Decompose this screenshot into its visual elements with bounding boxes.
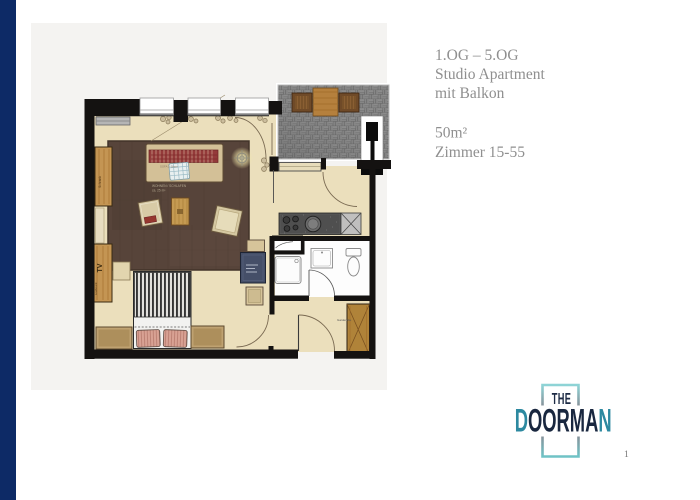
svg-text:Garderobe: Garderobe [337, 318, 352, 322]
svg-text:Studio Apartment: Studio Apartment [435, 66, 545, 83]
svg-text:TV: TV [97, 263, 104, 272]
svg-text:1: 1 [624, 450, 629, 460]
svg-text:WOHNEN / SCHLAFEN: WOHNEN / SCHLAFEN [152, 184, 187, 188]
svg-text:ca. 25 m²: ca. 25 m² [152, 189, 165, 193]
svg-text:Schrank: Schrank [98, 176, 102, 188]
svg-text:Lowboard: Lowboard [94, 282, 98, 295]
svg-text:DOORMAN: DOORMAN [515, 402, 612, 439]
svg-text:SOFA 2-Sitzer: SOFA 2-Sitzer [160, 165, 178, 169]
svg-text:50m²: 50m² [435, 125, 468, 142]
svg-text:mit Balkon: mit Balkon [435, 85, 505, 102]
svg-text:Zimmer 15-55: Zimmer 15-55 [435, 144, 525, 161]
svg-text:1.OG – 5.OG: 1.OG – 5.OG [435, 47, 519, 64]
